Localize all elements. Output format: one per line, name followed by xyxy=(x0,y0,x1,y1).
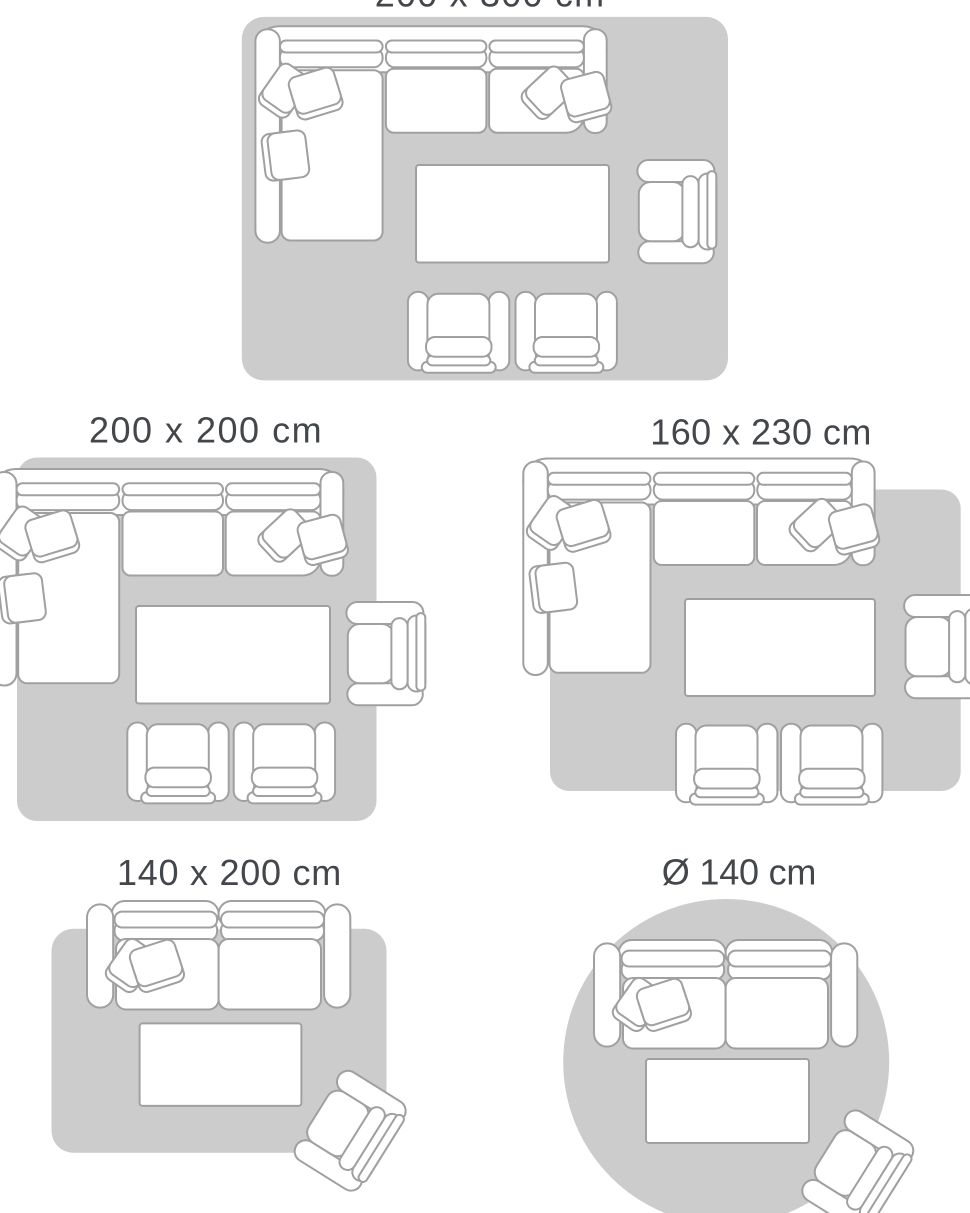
svg-text:140 x 200 cm: 140 x 200 cm xyxy=(117,852,342,893)
svg-text:160 x 230 cm: 160 x 230 cm xyxy=(650,412,872,453)
svg-text:200 x 300 cm: 200 x 300 cm xyxy=(375,0,606,15)
svg-text:Ø 140 cm: Ø 140 cm xyxy=(662,852,816,893)
svg-text:200 x 200 cm: 200 x 200 cm xyxy=(89,410,323,451)
